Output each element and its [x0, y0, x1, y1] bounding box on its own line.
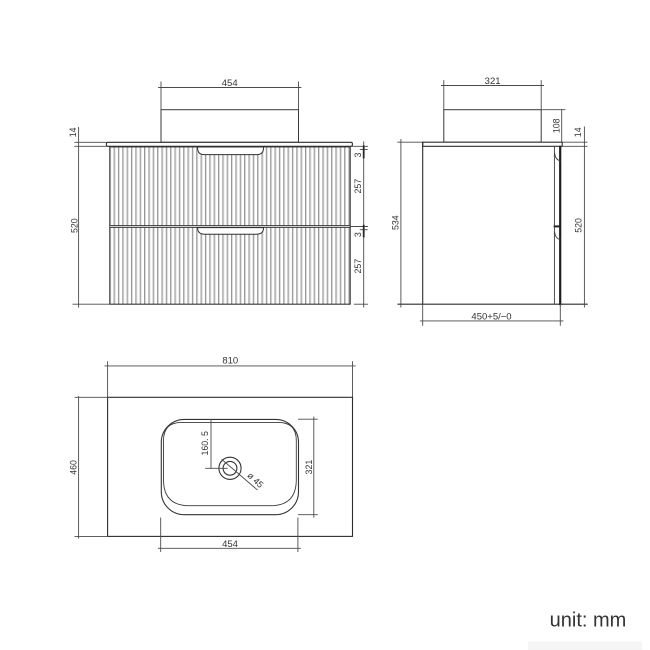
- svg-text:3: 3: [353, 232, 363, 237]
- svg-text:810: 810: [222, 355, 238, 366]
- svg-text:3: 3: [353, 152, 363, 157]
- svg-text:520: 520: [574, 218, 584, 233]
- svg-text:14: 14: [573, 127, 583, 137]
- svg-text:450+5/−0: 450+5/−0: [471, 312, 511, 323]
- svg-text:108: 108: [552, 118, 562, 133]
- svg-text:454: 454: [222, 539, 238, 550]
- svg-text:14: 14: [68, 127, 78, 137]
- svg-text:460: 460: [69, 460, 79, 475]
- svg-text:257: 257: [353, 259, 363, 274]
- svg-text:321: 321: [485, 76, 501, 87]
- svg-text:534: 534: [391, 215, 401, 230]
- svg-text:unit: mm: unit: mm: [550, 610, 627, 632]
- svg-text:454: 454: [222, 78, 238, 89]
- svg-text:160. 5: 160. 5: [200, 431, 210, 456]
- svg-text:520: 520: [69, 218, 79, 233]
- svg-text:257: 257: [353, 179, 363, 194]
- svg-text:321: 321: [304, 460, 314, 475]
